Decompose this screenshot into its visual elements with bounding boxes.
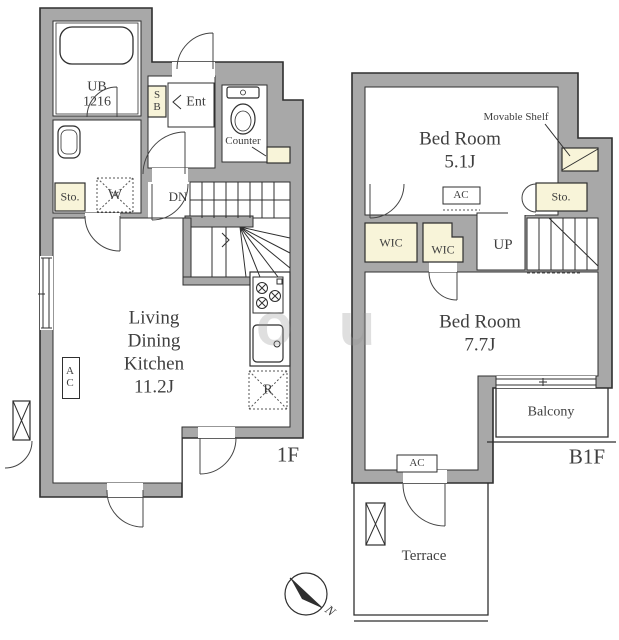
floor-label-1f: 1F xyxy=(277,443,299,466)
watermark: ou xyxy=(256,290,421,359)
stair-landing-wall xyxy=(185,216,253,227)
ldk-size-label: 11.2J xyxy=(134,378,174,399)
ldk-label-kitchen: Kitchen xyxy=(124,355,184,376)
window-left-1f xyxy=(38,256,53,330)
fridge-label: R xyxy=(263,382,272,397)
shoe-box-label: SB xyxy=(151,89,163,113)
stair-door-opening-1f xyxy=(152,168,188,183)
floorplan-1f xyxy=(5,8,303,527)
door-opening-sw xyxy=(107,483,143,497)
balcony-label: Balcony xyxy=(528,404,575,419)
entrance-label: Ent xyxy=(186,94,205,109)
wic1-label: WIC xyxy=(379,236,402,249)
floorplan-page: ou UB 1216 SB Ent Counter Sto. W DN Livi… xyxy=(0,0,619,640)
storage-label-1f: Sto. xyxy=(60,190,79,203)
stairs-down-label: DN xyxy=(169,190,188,204)
washbasin-icon xyxy=(58,126,80,158)
compass-needle xyxy=(290,578,322,608)
washer-label: W xyxy=(108,187,122,204)
terrace-label: Terrace xyxy=(402,548,447,565)
meter-box-1f xyxy=(5,401,32,468)
ac-label-bedroom2: AC xyxy=(409,457,424,469)
terrace-door xyxy=(403,484,445,526)
ac-label-bedroom1: AC xyxy=(453,189,468,201)
compass xyxy=(285,573,327,615)
stair-bottom-wall xyxy=(183,277,252,285)
terrace-meter-box xyxy=(366,503,385,545)
ac-label-1f: AC xyxy=(65,365,76,389)
wic2-label: WIC xyxy=(431,243,454,256)
bedroom2-size-label: 7.7J xyxy=(464,336,495,357)
stair-side-wall xyxy=(183,218,191,285)
entrance-opening-1f xyxy=(172,62,215,77)
counter-label: Counter xyxy=(225,135,260,147)
se-exterior-door xyxy=(200,438,236,474)
bathtub-icon xyxy=(60,27,133,64)
bath-size-label: 1216 xyxy=(83,94,111,109)
storage-label-b1f: Sto. xyxy=(551,190,570,203)
bedroom2-door-opening xyxy=(429,262,457,272)
bedroom1-size-label: 5.1J xyxy=(444,153,475,174)
bedroom1-name-label: Bed Room xyxy=(419,130,501,151)
ldk-label-dining: Dining xyxy=(128,332,181,353)
stairs-up-label: UP xyxy=(493,237,512,254)
bath-label: UB xyxy=(87,79,106,94)
ldk-label-living: Living xyxy=(129,309,180,330)
door-opening-se xyxy=(198,427,235,438)
bedroom2-name-label: Bed Room xyxy=(439,313,521,334)
balcony-window xyxy=(496,376,596,388)
washroom-door-opening xyxy=(85,213,120,219)
counter-box-1f xyxy=(267,147,290,163)
floor-label-b1f: B1F xyxy=(569,445,605,468)
movable-shelf-label: Movable Shelf xyxy=(483,111,548,123)
